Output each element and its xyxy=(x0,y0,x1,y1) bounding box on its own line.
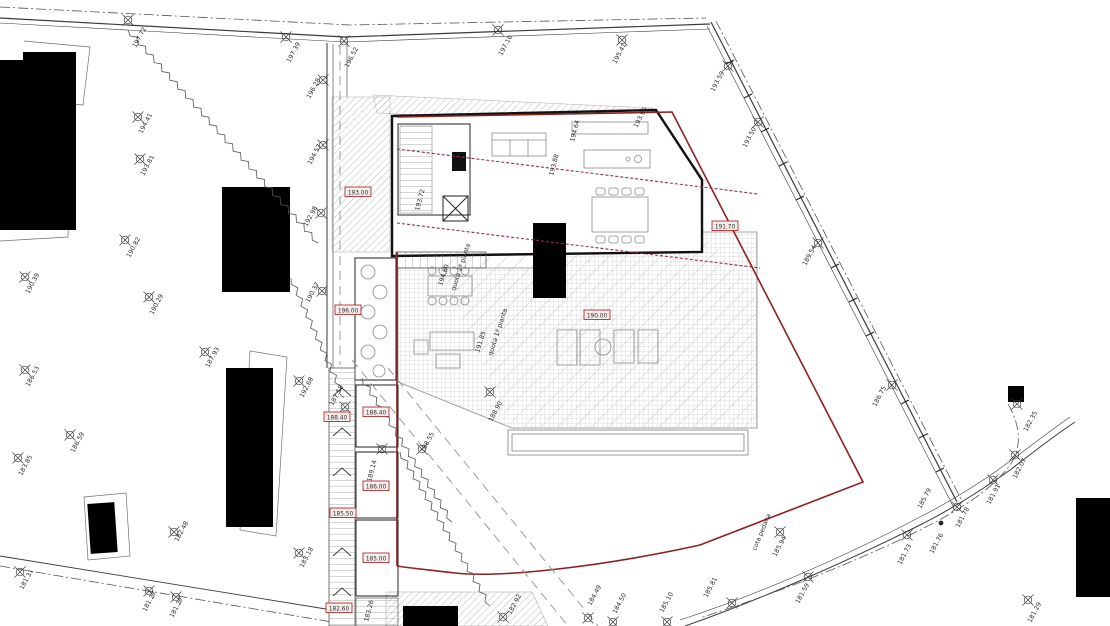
spot-elevation-label: 196.00 xyxy=(338,309,359,315)
survey-point-label: 197.39 xyxy=(286,41,303,64)
survey-marker: 185.94 xyxy=(772,527,789,558)
spot-elevation-label: 191.70 xyxy=(715,225,736,231)
survey-point-label: 182.07 xyxy=(1012,457,1029,480)
survey-point-label: 186.53 xyxy=(25,365,42,388)
survey-marker: 187.93 xyxy=(200,346,222,369)
survey-point-label: 182.35 xyxy=(1023,410,1040,433)
building xyxy=(0,60,76,230)
survey-marker: 192.68 xyxy=(294,376,316,399)
survey-point-label: 181.31 xyxy=(19,568,36,591)
spot-elevation: 185.50 xyxy=(330,508,356,518)
survey-point-label: 181.59 xyxy=(795,582,812,605)
building xyxy=(87,502,117,554)
survey-marker: 182.07 xyxy=(1010,450,1029,480)
survey-point-label: 185.10 xyxy=(659,591,676,614)
survey-marker: 194.57 xyxy=(307,140,329,166)
building xyxy=(1076,498,1110,597)
spot-elevation: 188.40 xyxy=(324,412,350,422)
survey-marker: 184.49 xyxy=(583,584,604,623)
north-boundary xyxy=(0,7,710,42)
survey-point-label: 192.98 xyxy=(303,205,320,228)
survey-marker: 181.27 xyxy=(169,592,186,619)
spot-elevation: 182.60 xyxy=(326,603,352,613)
spot-elevation: 186.00 xyxy=(363,481,389,491)
survey-point-label: 181.27 xyxy=(142,590,159,613)
spot-elevation-label: 193.00 xyxy=(348,191,369,197)
survey-marker: 181.76 xyxy=(929,521,946,555)
survey-point-label: 184.49 xyxy=(587,584,604,607)
survey-point-label: 196.52 xyxy=(344,46,361,69)
survey-marker: 195.41 xyxy=(612,35,629,65)
survey-point-label: 190.29 xyxy=(149,293,166,316)
building xyxy=(222,187,290,292)
survey-marker: 181.78 xyxy=(952,502,972,529)
south-hatch-area xyxy=(386,592,548,626)
building xyxy=(403,606,458,626)
survey-point-label: 194.57 xyxy=(307,143,324,166)
survey-point-label: 190.39 xyxy=(25,272,42,295)
building xyxy=(23,52,76,62)
spot-elevation-label: 188.40 xyxy=(327,416,348,422)
survey-marker: 189.14 xyxy=(366,444,387,483)
survey-point-label: 181.76 xyxy=(929,532,946,555)
survey-marker: 182.48 xyxy=(169,520,191,543)
survey-point-label: 189.14 xyxy=(366,459,378,482)
entry-steps xyxy=(396,252,486,268)
survey-marker: 183.18 xyxy=(294,546,316,569)
survey-marker: 185.10 xyxy=(659,591,676,626)
survey-point-label: 197.72 xyxy=(132,26,149,49)
survey-marker: 193.81 xyxy=(135,154,157,177)
survey-marker: 196.28 xyxy=(306,75,329,100)
spot-elevation-label: 186.40 xyxy=(366,411,387,417)
survey-point-label: 189.54 xyxy=(802,244,819,267)
spot-elevation: 196.00 xyxy=(335,305,361,315)
survey-marker: 197.16 xyxy=(493,25,515,57)
survey-marker: 181.91 xyxy=(986,475,1003,506)
survey-marker: 193.59 xyxy=(710,61,734,93)
spot-elevation-label: 190.00 xyxy=(587,314,608,320)
survey-point-label: 184.50 xyxy=(612,592,629,615)
south-boundary xyxy=(0,556,332,622)
spot-elevation: 186.40 xyxy=(363,407,389,417)
spot-elevation: 185.00 xyxy=(363,553,389,563)
survey-point-label: 183.85 xyxy=(18,454,35,477)
terraced-rooms xyxy=(356,385,398,626)
survey-marker: 190.37 xyxy=(305,281,328,304)
survey-marker: 186.53 xyxy=(20,365,42,388)
survey-point-label: 181.73 xyxy=(897,543,914,566)
survey-point-label: 181.29 xyxy=(1027,601,1044,624)
survey-marker: 190.82 xyxy=(120,235,143,259)
survey-marker: 182.35 xyxy=(1012,399,1040,433)
spot-elevation-label: 186.00 xyxy=(366,485,387,491)
spot-elevation-label: 185.50 xyxy=(333,512,354,518)
survey-marker: 186.59 xyxy=(65,430,87,454)
survey-marker: 184.50 xyxy=(608,592,629,626)
survey-marker: 197.39 xyxy=(281,32,303,64)
lower-deck-inner xyxy=(512,434,744,451)
survey-point-label: 188.55 xyxy=(420,431,437,454)
spot-elevation-label: 185.00 xyxy=(366,557,387,563)
site-plan-drawing: 197.72197.39196.52196.28194.41193.81194.… xyxy=(0,0,1110,626)
survey-marker: 190.39 xyxy=(20,272,42,295)
annotation-label: cota pedana xyxy=(751,513,772,552)
survey-marker: 192.98 xyxy=(303,205,327,228)
survey-point-label: 192.68 xyxy=(299,376,316,399)
survey-marker: 181.29 xyxy=(1023,595,1044,624)
survey-point-label: 193.59 xyxy=(710,70,727,93)
survey-point-label: 193.50 xyxy=(742,126,759,149)
survey-point-label: 181.91 xyxy=(986,483,1003,506)
survey-marker: 181.27 xyxy=(142,586,159,613)
survey-point-label: 186.59 xyxy=(70,431,87,454)
survey-point-label: 185.81 xyxy=(703,576,720,599)
survey-point-label: 185.94 xyxy=(772,535,789,558)
site-plan-canvas: 197.72197.39196.52196.28194.41193.81194.… xyxy=(0,0,1110,626)
survey-point-label: 196.28 xyxy=(306,77,323,100)
survey-marker: 189.54 xyxy=(802,238,824,267)
spot-elevation: 191.70 xyxy=(712,221,738,231)
core-shaft xyxy=(533,223,566,298)
survey-point-label: 194.41 xyxy=(138,112,155,135)
survey-point-label: 182.48 xyxy=(174,520,191,543)
survey-marker: 190.29 xyxy=(144,292,166,316)
spot-elevation: 190.00 xyxy=(584,310,610,320)
spot-elevation-label: 182.60 xyxy=(329,607,350,613)
fence-ticks xyxy=(726,60,944,472)
slope-hatch xyxy=(332,97,390,252)
building xyxy=(226,368,273,527)
survey-point-label: 197.16 xyxy=(498,34,515,57)
annotation-label: 185.79 xyxy=(917,487,934,510)
survey-point-label: 193.81 xyxy=(140,154,157,177)
survey-marker: 185.81 xyxy=(703,576,738,608)
survey-point-label: 186.75 xyxy=(872,385,889,408)
survey-marker: 193.50 xyxy=(742,117,764,149)
survey-point-label: 190.82 xyxy=(126,236,143,259)
survey-marker: 186.75 xyxy=(872,380,898,408)
spot-elevation: 193.00 xyxy=(345,187,371,197)
survey-point-label: 195.41 xyxy=(612,42,629,65)
survey-point-label: 181.27 xyxy=(169,596,186,619)
survey-marker: 194.41 xyxy=(133,112,155,135)
survey-marker: 196.52 xyxy=(339,36,361,69)
shaft xyxy=(452,152,466,171)
access-road xyxy=(680,404,1075,626)
survey-marker: 183.85 xyxy=(13,453,35,477)
planter-strip xyxy=(355,258,396,380)
survey-marker: 197.72 xyxy=(123,15,149,49)
